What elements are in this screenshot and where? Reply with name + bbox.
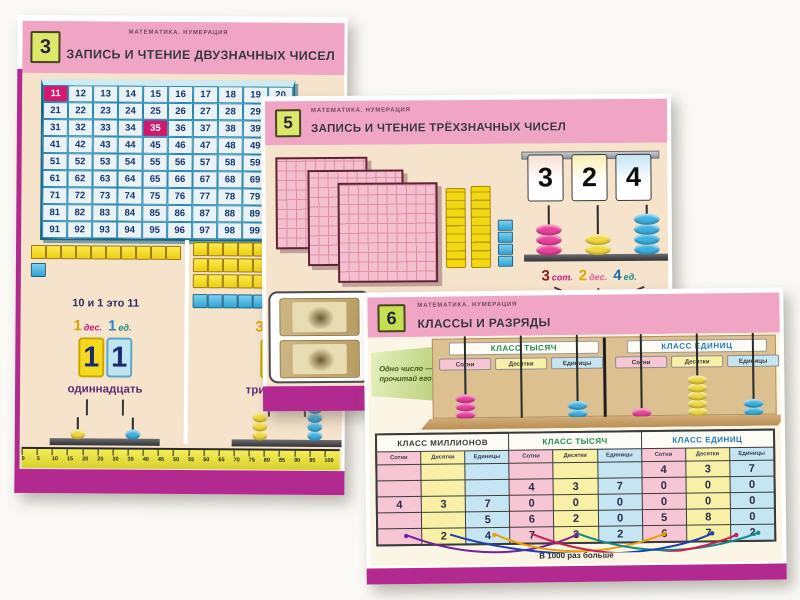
table-digit-cell: 3	[686, 461, 729, 477]
grid-cell: 84	[117, 205, 142, 222]
grid-cell: 88	[217, 205, 242, 222]
table-digit-cell	[466, 464, 509, 480]
grid-cell: 77	[192, 188, 217, 205]
abacus-bead	[536, 234, 562, 245]
counting-cube	[193, 294, 208, 308]
grid-cell: 73	[92, 187, 117, 204]
decomp-number: 1	[108, 317, 116, 334]
number-line-ruler: 0510152025303540455055606570758085909510…	[22, 447, 340, 470]
grid-cell: 58	[218, 154, 243, 171]
grid-cell: 65	[142, 171, 167, 188]
table-digit-cell	[554, 463, 597, 479]
flip-card: 2	[571, 154, 607, 201]
table-digit-cell: 0	[598, 494, 641, 510]
table-digit-cell: 6	[510, 511, 553, 527]
ruler-number: 15	[67, 456, 73, 462]
unit-cubes	[193, 294, 268, 311]
abacus-bead	[307, 413, 322, 423]
poster-5-title: ЗАПИСЬ И ЧТЕНИЕ ТРЁХЗНАЧНЫХ ЧИСЕЛ	[311, 121, 566, 135]
grid-cell: 82	[67, 204, 92, 221]
grid-cell: 45	[143, 137, 168, 154]
ruler-tick: 50	[173, 450, 188, 469]
ruler-tick: 90	[294, 451, 309, 470]
poster-5-header: 5 МАТЕМАТИКА. НУМЕРАЦИЯ ЗАПИСЬ И ЧТЕНИЕ …	[265, 99, 667, 146]
unit-cube	[498, 256, 513, 267]
ten-rod-cubes	[31, 245, 181, 262]
table-digit-cell: 0	[731, 493, 774, 509]
grid-cell: 74	[117, 188, 142, 205]
grid-cell: 61	[42, 170, 67, 187]
decomp-unit: ед.	[118, 323, 131, 333]
grid-cell: 83	[92, 204, 117, 221]
table-digit-cell	[422, 480, 465, 496]
abacus-bead	[535, 224, 561, 235]
ruler-number: 75	[249, 457, 255, 463]
abacus-bead	[687, 375, 707, 384]
poster-6-body: Одно число — прочитай его! КЛАСС ТЫСЯЧ К…	[368, 332, 783, 566]
ruler-number: 45	[158, 457, 164, 463]
abacus-bead	[70, 429, 85, 439]
abacus-rod	[533, 205, 563, 255]
abacus-rod	[117, 418, 147, 440]
table-digit-cell	[421, 464, 464, 480]
abacus-bead	[634, 244, 660, 255]
table-digit-cell: 7	[598, 478, 641, 494]
counting-cube	[223, 258, 238, 272]
grid-cell: 43	[93, 136, 118, 153]
grid-cell: 91	[42, 221, 67, 238]
table-digit-cell: 7	[730, 461, 773, 477]
counting-cube	[238, 242, 253, 256]
ruler-number: 35	[128, 457, 134, 463]
grid-row: 31323334353637383940	[43, 119, 293, 138]
poster-bottom-band	[367, 563, 787, 584]
ruler-tick: 20	[82, 449, 97, 468]
grid-cell: 15	[143, 86, 168, 103]
grid-cell: 48	[218, 137, 243, 154]
decomp-number: 1	[73, 317, 81, 334]
abacus	[524, 205, 669, 262]
cube-row	[31, 263, 46, 277]
ruler-tick: 75	[249, 450, 264, 469]
grid-cell: 35	[143, 120, 168, 137]
abacus-bead	[687, 383, 707, 392]
table-digit-cell: 0	[554, 495, 597, 511]
grid-cell: 92	[67, 221, 92, 238]
grid-cell: 94	[117, 222, 142, 239]
grid-row: 11121314151617181920	[43, 85, 293, 104]
grid-cell: 22	[68, 102, 93, 119]
grid-cell: 54	[118, 154, 143, 171]
ruler-number: 25	[97, 456, 103, 462]
series-label: МАТЕМАТИКА. НУМЕРАЦИЯ	[311, 107, 411, 114]
ruler-number: 85	[279, 458, 285, 464]
flip-card: 3	[527, 154, 563, 201]
table-digit-cell: 0	[686, 477, 729, 493]
grid-cell: 67	[192, 171, 217, 188]
grid-cell: 85	[142, 205, 167, 222]
grid-cell: 41	[43, 136, 68, 153]
grid-row: 61626364656667686970	[42, 170, 292, 189]
abacus-bead	[568, 401, 588, 410]
counting-cube	[208, 274, 223, 288]
grid-cell: 56	[168, 154, 193, 171]
table-digit-cell: 0	[510, 495, 553, 511]
counting-cube	[238, 274, 253, 288]
abacus-bead	[307, 422, 322, 432]
ruler-number: 70	[234, 457, 240, 463]
table-digit-cell	[598, 462, 641, 478]
grid-cell: 33	[93, 119, 118, 136]
poster-3-title: ЗАПИСЬ И ЧТЕНИЕ ДВУЗНАЧНЫХ ЧИСЕЛ	[66, 47, 335, 63]
poster-3-header: 3 МАТЕМАТИКА. НУМЕРАЦИЯ ЗАПИСЬ И ЧТЕНИЕ …	[22, 21, 344, 75]
ruler-number: 55	[188, 457, 194, 463]
table-digit-cell: 0	[686, 493, 729, 509]
photo-of-posters: 3 МАТЕМАТИКА. НУМЕРАЦИЯ ЗАПИСЬ И ЧТЕНИЕ …	[0, 0, 800, 600]
hint-line: Одно число —	[379, 364, 435, 375]
class-divider	[603, 338, 607, 418]
counting-cube	[208, 242, 223, 256]
grid-cell: 86	[167, 205, 192, 222]
unit-cube	[498, 220, 513, 231]
series-label: МАТЕМАТИКА. НУМЕРАЦИЯ	[129, 30, 229, 37]
ruler-tick: 10	[52, 449, 67, 468]
unit-cube	[31, 263, 46, 279]
ruler-number: 50	[173, 457, 179, 463]
grid-cell: 78	[217, 188, 242, 205]
abacus-bead	[688, 407, 708, 416]
series-label: МАТЕМАТИКА. НУМЕРАЦИЯ	[417, 302, 517, 309]
hint-line: прочитай его!	[379, 374, 435, 385]
banknote-image	[280, 340, 360, 379]
ruler-number: 40	[143, 457, 149, 463]
caption: 10 и 1 это 11	[31, 297, 181, 310]
counting-cube	[151, 246, 166, 260]
abacus-bead	[456, 402, 476, 411]
ruler-tick: 70	[233, 450, 248, 469]
grid-row: 919293949596979899100	[42, 221, 292, 240]
cube-row	[31, 245, 181, 260]
counting-cube	[238, 294, 253, 308]
grid-cell: 93	[92, 221, 117, 238]
table-digit-cell: 3	[554, 479, 597, 495]
table-digit-cell	[378, 481, 421, 497]
unit-cube	[498, 232, 513, 243]
grid-cell: 24	[118, 103, 143, 120]
grid-cell: 96	[167, 222, 192, 239]
counting-cube	[121, 246, 136, 260]
abacus-bead	[585, 234, 611, 245]
grid-cell: 63	[92, 170, 117, 187]
abacus-bead	[307, 431, 322, 441]
column-header-cell: Сотни	[510, 450, 553, 463]
grid-cell: 31	[43, 119, 68, 136]
ruler-number: 90	[294, 458, 300, 464]
table-digit-cell: 3	[422, 496, 465, 512]
grid-cell: 51	[43, 153, 68, 170]
decomposition-label: 3сот.2дес.4ед.	[512, 267, 669, 286]
column-header-cell: Десятки	[554, 450, 597, 463]
number-word: одиннадцать	[30, 383, 180, 396]
flip-card: 4	[615, 154, 651, 201]
abacus	[50, 417, 160, 446]
grid-cell: 57	[193, 154, 218, 171]
abacus-bead	[252, 421, 267, 431]
grid-cell: 28	[218, 103, 243, 120]
abacus-rod	[244, 418, 274, 440]
abacus-bead	[455, 394, 475, 403]
abacus-bead	[688, 399, 708, 408]
abacus-rod	[299, 419, 329, 441]
grid-cell: 42	[68, 136, 93, 153]
counting-cube	[76, 245, 91, 259]
grid-cell: 87	[192, 205, 217, 222]
grid-cell: 18	[218, 86, 243, 103]
connector-line	[86, 399, 88, 415]
ruler-tick: 85	[279, 451, 294, 470]
grid-cell: 95	[142, 222, 167, 239]
ten-rod	[471, 186, 492, 268]
ten-rod	[446, 188, 467, 268]
table-digit-cell: 5	[643, 510, 686, 526]
ruler-number: 60	[203, 457, 209, 463]
class-header-cell: КЛАСС ЕДИНИЦ	[642, 431, 774, 449]
counting-cube	[208, 294, 223, 308]
grid-cell: 11	[43, 85, 68, 102]
counting-cube	[91, 245, 106, 259]
grid-cell: 47	[193, 137, 218, 154]
column-header-cell: Десятки	[421, 451, 464, 464]
grid-row: 81828384858687888990	[42, 204, 292, 223]
grid-cell: 66	[167, 171, 192, 188]
decomp-unit: сот.	[552, 272, 573, 282]
ruler-number: 65	[218, 457, 224, 463]
abacus-bead	[634, 234, 660, 245]
demo-eleven: 10 и 1 это 11 1дес.1ед. 11 одиннадцать	[31, 241, 181, 242]
table-digit-cell	[510, 463, 553, 479]
abacus-bead	[744, 399, 764, 408]
grid-cell: 76	[167, 188, 192, 205]
grid-cell: 75	[142, 188, 167, 205]
ruler-tick: 100	[324, 451, 339, 470]
grid-cell: 16	[168, 86, 193, 103]
abacus-bead	[125, 430, 140, 440]
decomp-unit: дес.	[84, 322, 102, 332]
hundred-square	[338, 182, 439, 283]
counting-cube	[208, 258, 223, 272]
grid-cell: 53	[93, 153, 118, 170]
poster-number-badge: 5	[275, 109, 301, 137]
decomp-number: 2	[579, 267, 587, 284]
number-grid: 1112131415161718192021222324252627282930…	[40, 79, 295, 242]
counting-cube	[46, 245, 61, 259]
abacus-bead	[456, 410, 476, 419]
counting-cube	[106, 245, 121, 259]
ruler-number: 100	[324, 458, 333, 464]
table-digit-cell: 0	[642, 494, 685, 510]
decomp-number: 3	[541, 267, 549, 284]
column-header-cell: Десятки	[686, 448, 729, 461]
counting-cube	[223, 242, 238, 256]
abacus-bead	[536, 244, 562, 255]
ruler-tick: 65	[218, 450, 233, 469]
abacus-bead	[632, 408, 652, 417]
ruler-tick: 30	[112, 450, 127, 469]
table-digit-cell	[377, 465, 420, 481]
big-digit: 1	[106, 337, 132, 377]
counting-cube	[193, 242, 208, 256]
abacus-bead	[252, 430, 267, 440]
counting-cube	[31, 263, 46, 277]
column-header-cell: Сотни	[377, 452, 420, 465]
column-header-cell: Единицы	[598, 449, 641, 462]
ruler-number: 0	[22, 456, 25, 462]
counting-cube	[61, 245, 76, 259]
grid-row: 71727374757677787980	[42, 187, 292, 206]
table-digit-cell: 4	[510, 479, 553, 495]
grid-cell: 98	[217, 222, 242, 239]
grid-cell: 55	[143, 154, 168, 171]
grid-cell: 23	[93, 102, 118, 119]
banknotes-panel	[268, 291, 371, 384]
grid-cell: 64	[117, 171, 142, 188]
grid-row: 21222324252627282930	[43, 102, 293, 121]
abacus-rod	[62, 417, 92, 439]
ruler-tick: 80	[264, 451, 279, 470]
grid-cell: 97	[192, 222, 217, 239]
column-header-cell: Единицы	[465, 451, 508, 464]
table-digit-cell	[466, 480, 509, 496]
grid-row: 41424344454647484950	[43, 136, 293, 155]
ruler-tick: 15	[67, 449, 82, 468]
grid-cell: 12	[68, 85, 93, 102]
grid-cell: 34	[118, 120, 143, 137]
class-header-cell: КЛАСС МИЛЛИОНОВ	[377, 434, 509, 452]
table-digit-cell: 0	[598, 510, 641, 526]
grid-row: 51525354555657585960	[43, 153, 293, 172]
poster-6-header: 6 МАТЕМАТИКА. НУМЕРАЦИЯ КЛАССЫ И РАЗРЯДЫ	[367, 292, 779, 337]
ruler-number: 30	[112, 457, 118, 463]
abacus-rod	[583, 205, 613, 255]
table-digit-cell: 4	[642, 462, 685, 478]
grid-cell: 37	[193, 120, 218, 137]
table-digit-cell: 5	[466, 512, 509, 528]
table-digit-cell: 7	[466, 496, 509, 512]
counting-cube	[31, 245, 46, 259]
counting-cube	[136, 246, 151, 260]
counting-cube	[166, 246, 181, 260]
table-digit-cell	[378, 513, 421, 529]
ruler-tick: 60	[203, 450, 218, 469]
grid-cell: 52	[68, 153, 93, 170]
class-header-cell: КЛАСС ТЫСЯЧ	[509, 432, 641, 450]
decomposition-label: 1дес.1ед.	[30, 317, 180, 336]
grid-cell: 25	[143, 103, 168, 120]
grid-cell: 81	[42, 204, 67, 221]
grid-cell: 72	[67, 187, 92, 204]
big-digit: 1	[78, 337, 104, 377]
ruler-tick: 95	[309, 451, 324, 470]
poster-number-badge: 6	[377, 304, 405, 332]
table-digit-cell: 2	[554, 511, 597, 527]
grid-cell: 38	[218, 120, 243, 137]
counting-cube	[193, 258, 208, 272]
abacus-bead	[585, 244, 611, 255]
poster-bottom-band	[14, 469, 344, 495]
big-number-11: 11	[30, 337, 180, 378]
grid-cell: 32	[68, 119, 93, 136]
column-header-cell: Единицы	[730, 448, 773, 461]
abacus-rod	[632, 205, 662, 255]
grid-cell: 71	[42, 187, 67, 204]
cube-row	[193, 294, 268, 309]
grid-cell: 13	[93, 85, 118, 102]
ruler-tick: 55	[188, 450, 203, 469]
abacus-board: КЛАСС ТЫСЯЧ КЛАСС ЕДИНИЦ СотниДесяткиЕди…	[432, 335, 777, 419]
counting-cube	[223, 294, 238, 308]
table-digit-cell: 0	[642, 478, 685, 494]
decomp-unit: ед.	[624, 272, 637, 282]
poster-6-classes-and-places: 6 МАТЕМАТИКА. НУМЕРАЦИЯ КЛАССЫ И РАЗРЯДЫ…	[363, 287, 787, 584]
counting-cube	[193, 274, 208, 288]
abacus	[232, 418, 342, 447]
table-digit-cell: 0	[730, 477, 773, 493]
grid-cell: 21	[43, 102, 68, 119]
counting-cube	[223, 274, 238, 288]
ruler-tick: 40	[143, 450, 158, 469]
section-divider	[184, 240, 189, 444]
ruler-number: 10	[52, 456, 58, 462]
column-header-cell: Сотни	[642, 449, 685, 462]
grid-cell: 68	[217, 171, 242, 188]
abacus-bead	[252, 412, 267, 422]
table-digit-cell	[422, 512, 465, 528]
decomp-unit: дес.	[589, 272, 607, 282]
table-digit-cell: 8	[687, 509, 730, 525]
connector-line	[122, 400, 124, 416]
abacus-bead	[634, 214, 660, 225]
banknote-image	[279, 298, 359, 337]
ruler-number: 5	[37, 456, 40, 462]
abacus-bead	[687, 391, 707, 400]
ruler-number: 80	[264, 458, 270, 464]
poster-number-badge: 3	[30, 31, 60, 63]
counting-cube	[238, 258, 253, 272]
unit-cube	[498, 244, 513, 255]
poster-6-title: КЛАССЫ И РАЗРЯДЫ	[418, 315, 551, 331]
grid-cell: 44	[118, 137, 143, 154]
grid-cell: 17	[193, 86, 218, 103]
table-digit-cell: 0	[731, 509, 774, 525]
ruler-tick: 5	[37, 449, 52, 468]
grid-cell: 46	[168, 137, 193, 154]
ruler-tick: 25	[97, 449, 112, 468]
ruler-tick: 45	[158, 450, 173, 469]
grid-cell: 36	[168, 120, 193, 137]
grid-cell: 27	[193, 103, 218, 120]
abacus-bead	[568, 409, 588, 418]
ruler-number: 95	[309, 458, 315, 464]
decomp-number: 4	[613, 267, 621, 284]
ruler-number: 20	[82, 456, 88, 462]
grid-cell: 14	[118, 86, 143, 103]
abacus-bead	[744, 407, 764, 416]
ruler-tick: 0	[22, 449, 37, 468]
abacus-bead	[634, 224, 660, 235]
ruler-tick: 35	[127, 450, 142, 469]
table-digit-cell: 4	[378, 497, 421, 513]
grid-cell: 62	[67, 170, 92, 187]
